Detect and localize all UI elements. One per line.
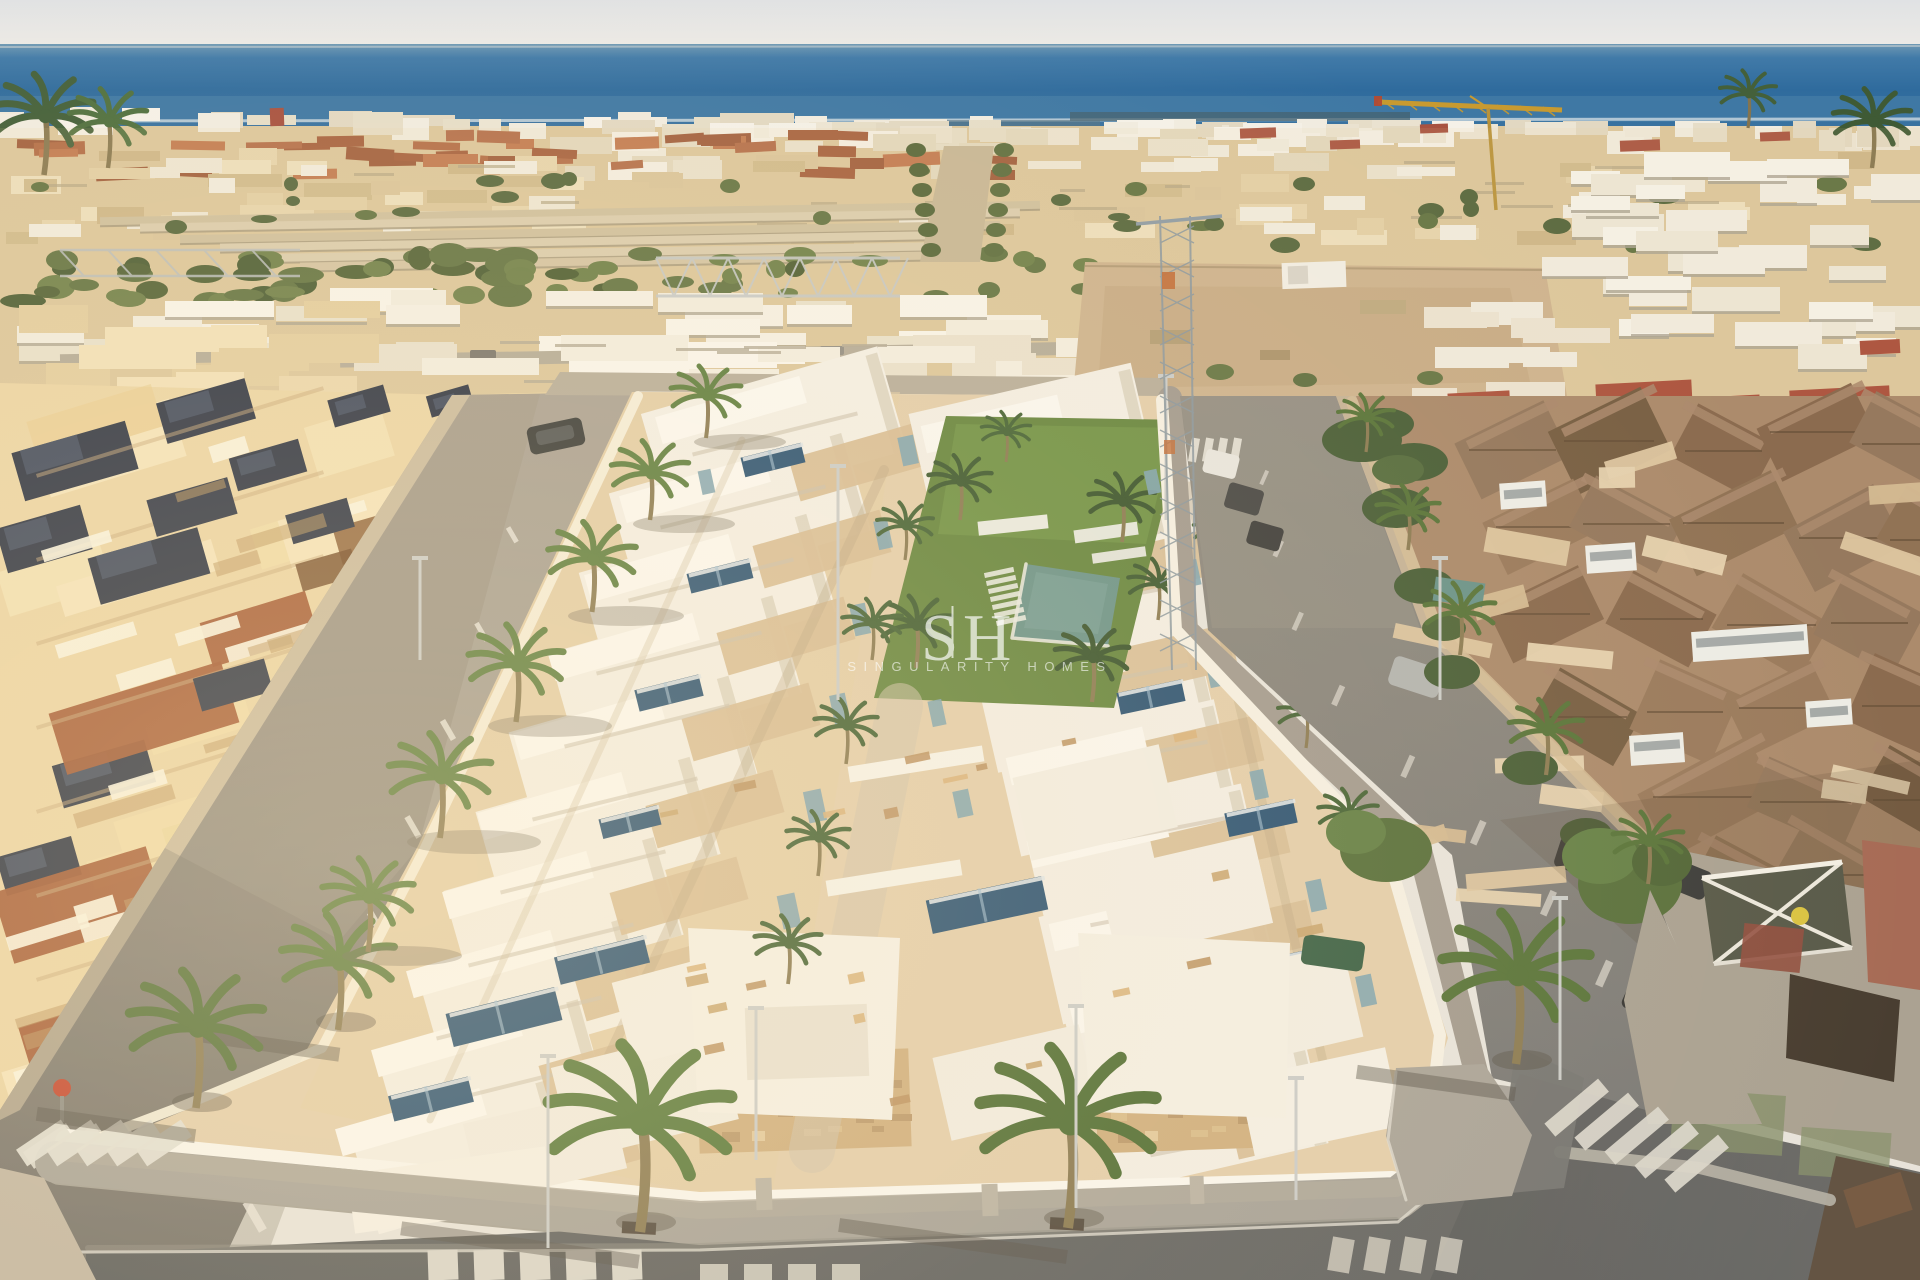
svg-text:SINGULARITY HOMES: SINGULARITY HOMES (847, 659, 1112, 674)
